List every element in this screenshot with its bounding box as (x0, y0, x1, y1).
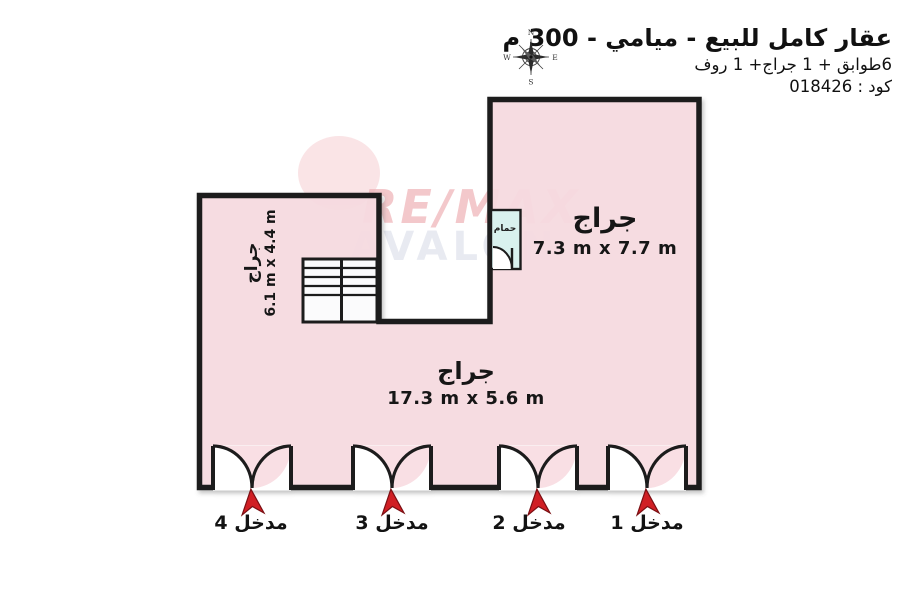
entrance-label-4: مدخل 4 (205, 512, 297, 534)
entrance-arrows (240, 488, 659, 515)
room-name: جراج (346, 358, 586, 384)
page: { "header": { "title": "عقار كامل للبيع … (0, 0, 900, 599)
entrance-arrow-icon (635, 488, 659, 515)
entrance-arrow-icon (380, 488, 404, 515)
room-name: جراج (494, 204, 716, 234)
compass-icon: N E S W (503, 26, 559, 86)
room-dimensions: 17.3 m x 5.6 m (346, 388, 586, 409)
staircase (303, 259, 377, 322)
entrance-arch-4 (213, 446, 291, 491)
entrance-arch-2 (499, 446, 577, 491)
svg-text:E: E (552, 53, 557, 62)
entrance-arch-1 (608, 446, 686, 491)
room-label-garage-left: جراج 6.1 m x 4.4 m (243, 197, 293, 329)
svg-text:N: N (528, 28, 535, 37)
room-label-bathroom: حمام (488, 224, 522, 234)
room-name: جراج (243, 197, 262, 329)
room-dimensions: 6.1 m x 4.4 m (263, 197, 279, 329)
room-dimensions: 7.3 m x 7.7 m (494, 238, 716, 259)
svg-text:S: S (528, 78, 533, 87)
entrance-label-1: مدخل 1 (601, 512, 693, 534)
svg-text:W: W (503, 53, 511, 62)
room-label-garage-bottom: جراج 17.3 m x 5.6 m (346, 358, 586, 409)
entrance-arrow-icon (526, 488, 550, 515)
entrance-arrow-icon (240, 488, 264, 515)
entrance-label-3: مدخل 3 (346, 512, 438, 534)
entrance-arch-3 (353, 446, 431, 491)
floor-plan (0, 0, 900, 599)
entrance-label-2: مدخل 2 (483, 512, 575, 534)
room-label-garage-top-right: جراج 7.3 m x 7.7 m (494, 204, 716, 259)
